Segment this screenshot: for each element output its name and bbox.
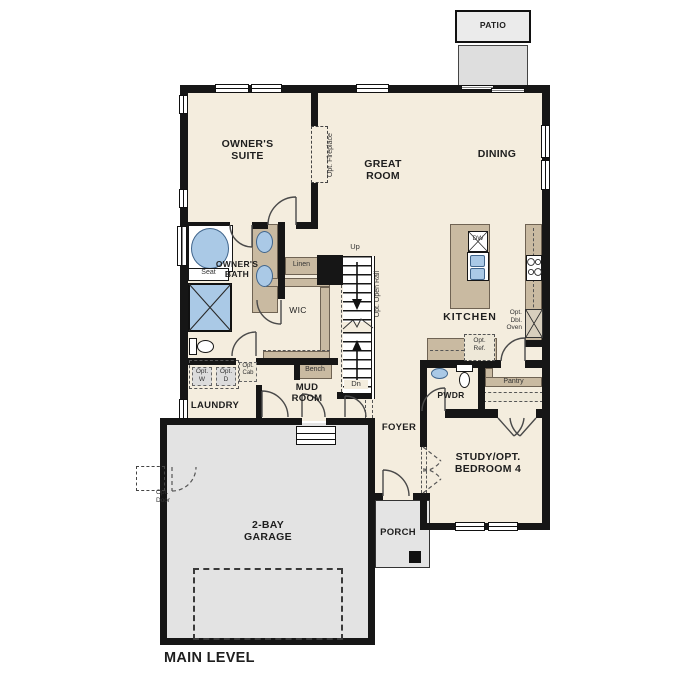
opening-dash	[426, 447, 427, 493]
opt-fireplace-label: Opt. Fireplace	[327, 120, 335, 190]
room-label-mud-room: MUD ROOM	[285, 382, 329, 404]
wic-shelf-right	[320, 287, 330, 353]
room-label-kitchen: KITCHEN	[438, 311, 502, 323]
wall	[445, 409, 498, 418]
structural-block	[317, 255, 343, 285]
stair-label-up: Up	[340, 243, 370, 252]
window	[541, 160, 550, 190]
window	[541, 125, 550, 158]
toilet-tank	[189, 338, 197, 355]
wall	[296, 222, 318, 229]
window	[356, 84, 389, 93]
window	[179, 189, 188, 208]
pantry-opt-shelf	[483, 392, 543, 402]
garage-door-outline	[193, 568, 343, 640]
window	[179, 95, 188, 114]
opt-double-oven-label: Opt. Dbl. Oven	[496, 309, 522, 332]
room-label-study: STUDY/OPT. BEDROOM 4	[446, 451, 530, 476]
plan-title: MAIN LEVEL	[164, 650, 324, 667]
counter-centerline	[430, 350, 464, 351]
opt-door-label: Opt. Door	[156, 489, 190, 504]
wall	[278, 222, 285, 299]
wall	[256, 385, 262, 418]
wall	[160, 418, 167, 645]
opening-dash	[365, 400, 366, 418]
window	[251, 84, 282, 93]
bench-label: Bench	[298, 366, 332, 374]
porch-column	[409, 551, 421, 563]
wall	[337, 392, 375, 399]
room-label-garage: 2-BAY GARAGE	[236, 519, 300, 544]
room-label-wic: WIC	[282, 305, 314, 315]
room-label-owners-suite: OWNER'S SUITE	[205, 138, 290, 163]
opening-dash	[421, 447, 422, 493]
sink-basin	[470, 255, 485, 267]
toilet-bowl	[197, 340, 214, 353]
wall	[368, 493, 383, 500]
linen-label: Linen	[285, 261, 318, 269]
wall	[536, 409, 550, 418]
wall	[160, 418, 302, 425]
wall	[368, 418, 375, 645]
opt-open-rail-label: Opt. Open Rail	[374, 259, 382, 329]
wall	[478, 368, 485, 412]
toilet-tank	[456, 364, 473, 372]
sink-basin	[470, 268, 485, 280]
window	[488, 522, 518, 531]
vanity-sink	[256, 231, 273, 253]
room-label-dining: DINING	[465, 148, 529, 160]
window	[179, 399, 188, 419]
sliding-door	[491, 88, 525, 93]
opt-double-oven-box	[525, 309, 543, 338]
window	[455, 522, 485, 531]
room-label-porch: PORCH	[376, 527, 420, 538]
opt-fireplace-box	[311, 126, 328, 183]
wall	[252, 222, 268, 229]
floor-plan: OWNER'S SUITE GREAT ROOM DINING KITCHEN …	[0, 0, 687, 687]
opening-dash	[372, 400, 373, 418]
sliding-door	[461, 85, 494, 90]
stair-label-down: Dn	[344, 380, 368, 389]
window	[215, 84, 249, 93]
window	[177, 226, 187, 266]
toilet-bowl	[459, 372, 470, 388]
cooktop	[526, 255, 542, 281]
shower-fixture	[188, 283, 232, 332]
seat-label: Seat	[188, 269, 229, 277]
wall	[311, 93, 318, 128]
opt-cabinet-label: Opt. Cab	[239, 363, 257, 377]
wall	[311, 183, 318, 225]
powder-sink	[431, 368, 448, 379]
opt-refrigerator-label: Opt. Ref.	[464, 337, 495, 352]
dishwasher-label: DW	[468, 235, 488, 243]
wall	[413, 493, 430, 500]
wic-dash	[263, 350, 330, 351]
opt-washer-label: Opt. W	[192, 368, 212, 383]
room-label-patio: PATIO	[455, 20, 531, 30]
opt-dryer-label: Opt. D	[216, 368, 236, 383]
wall	[420, 360, 427, 447]
room-label-laundry: LAUNDRY	[188, 400, 242, 411]
wall	[525, 360, 542, 368]
room-label-foyer: FOYER	[376, 422, 422, 433]
room-label-great-room: GREAT ROOM	[350, 158, 416, 183]
stairs-upper-run	[343, 256, 372, 322]
garage-step	[296, 426, 336, 445]
room-label-powder: PWDR	[430, 390, 472, 400]
patio-lower	[458, 45, 528, 87]
opt-garage-door-box	[136, 466, 165, 491]
pantry-label: Pantry	[485, 378, 542, 386]
wic-dash	[341, 285, 342, 392]
wall	[525, 340, 550, 347]
